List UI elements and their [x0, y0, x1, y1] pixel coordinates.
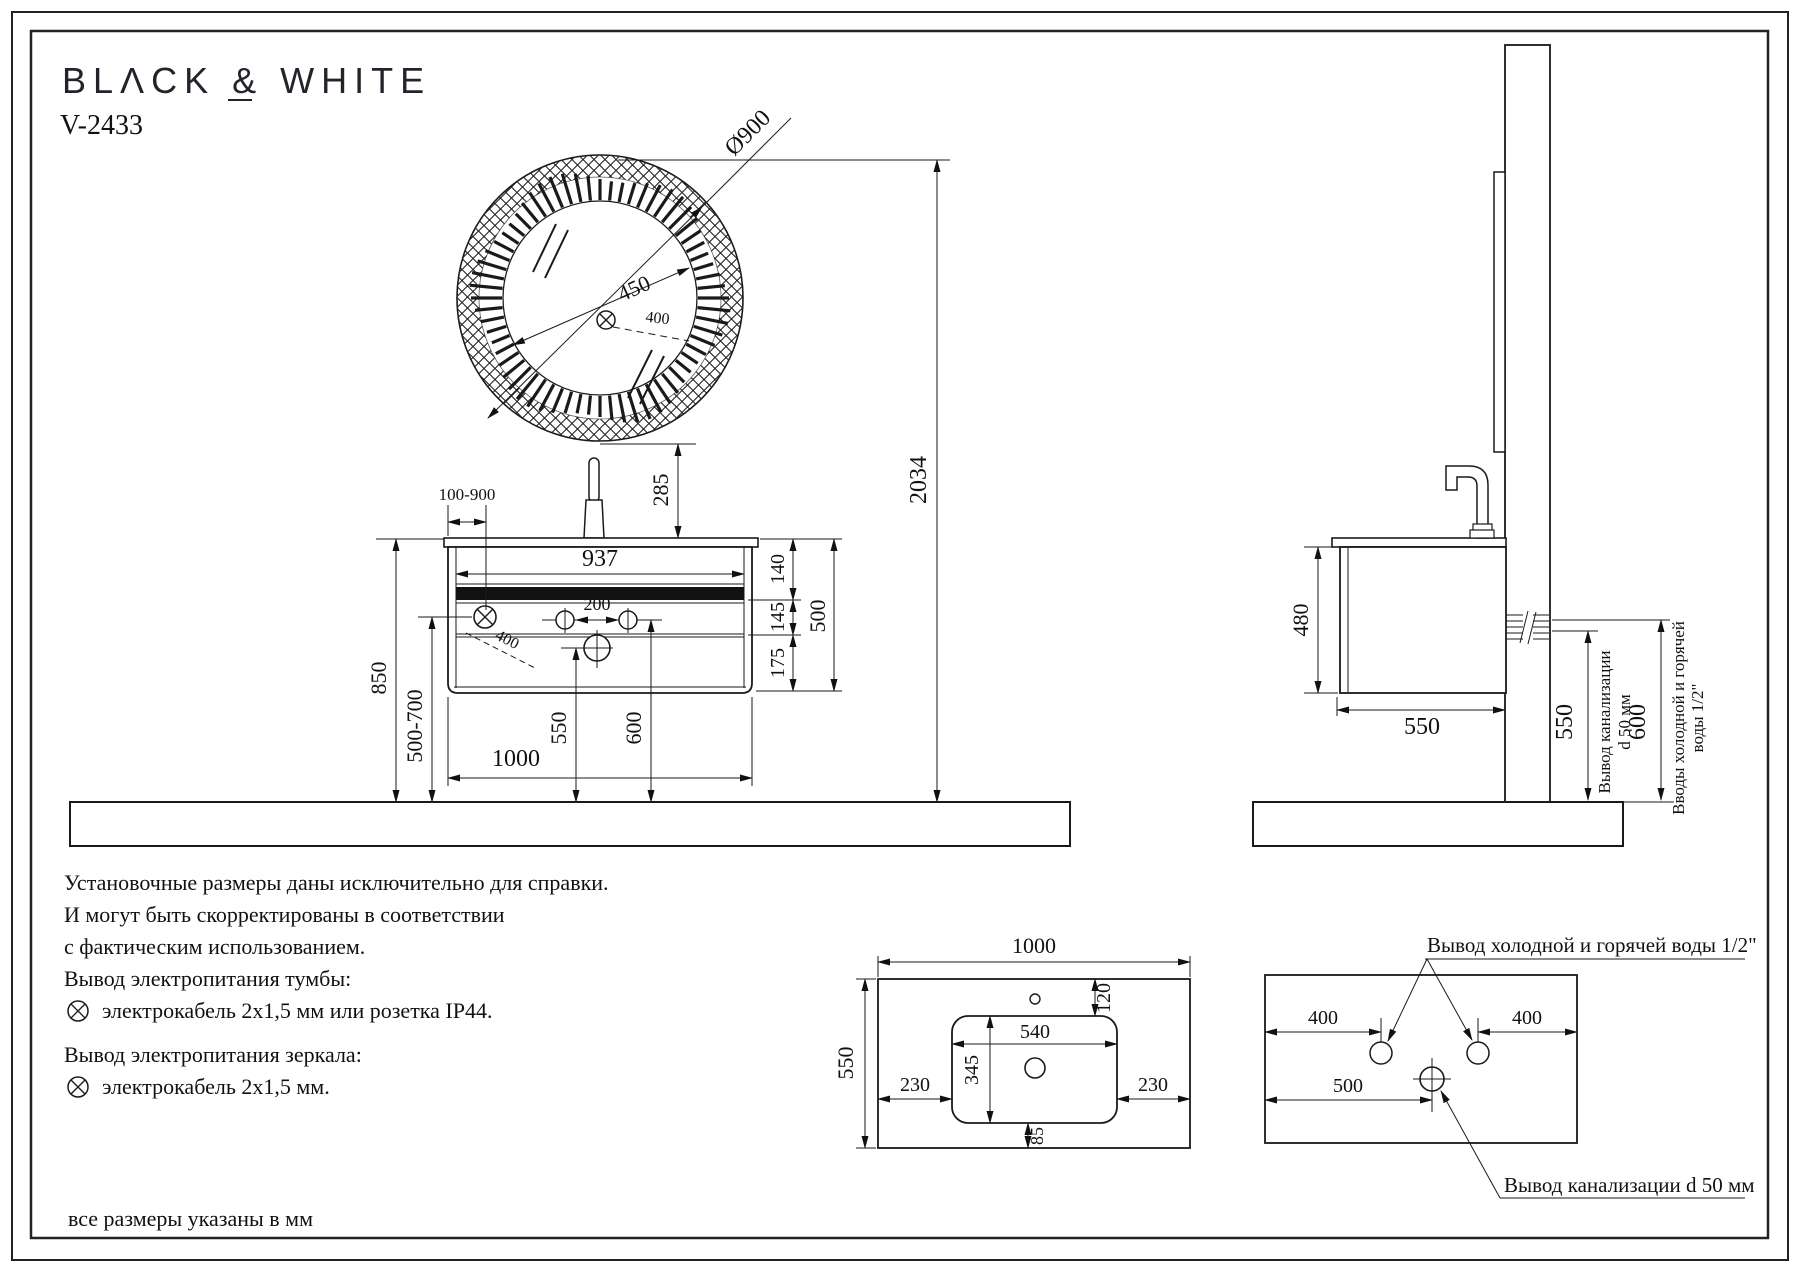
title-block: BLΛCK & WHITE V-2433	[60, 60, 431, 141]
dim-top-depth-label: 550	[833, 1047, 858, 1080]
note-line-7: электрокабель 2х1,5 мм.	[102, 1074, 330, 1099]
dim-drain-offset-label: 500	[1333, 1075, 1363, 1097]
note-line-2: И могут быть скорректированы в соответст…	[64, 902, 505, 927]
faucet-side	[1446, 466, 1494, 538]
side-water-note-line2: воды 1/2"	[1688, 684, 1707, 753]
wall-view: 400 400 500 Вывод холодной и горячей вод…	[1265, 933, 1757, 1198]
mirror-side	[1494, 172, 1505, 452]
dim-mirror-cable-label: 400	[645, 309, 671, 328]
dim-side-water-height-label: 600	[1625, 704, 1651, 740]
dim-mirror-diameter-label: Ø900	[720, 105, 776, 161]
dim-drain-height-front-label: 550	[546, 712, 571, 745]
dim-side-depth: 550	[1337, 697, 1505, 740]
power-symbol-mirror-note	[68, 1077, 88, 1097]
note-line-4: Вывод электропитания тумбы:	[64, 966, 351, 991]
side-water-note-line1: Вводы холодной и горячей	[1669, 621, 1688, 815]
dim-faucet-hole-offset: 120	[1093, 979, 1115, 1016]
note-line-6: Вывод электропитания зеркала:	[64, 1042, 362, 1067]
dim-faucet-range-label: 100-900	[439, 485, 496, 504]
floor-slab-side	[1253, 802, 1623, 846]
water-outlets-label: Вывод холодной и горячей воды 1/2"	[1427, 933, 1757, 957]
countertop-side	[1332, 538, 1506, 547]
note-line-3: с фактическим использованием.	[64, 934, 365, 959]
side-drain-note-line1: Вывод канализации	[1595, 650, 1614, 793]
dim-side-drain-height: 550 Вывод канализации d 50 мм	[1552, 631, 1634, 800]
dim-seg-mid-label: 145	[767, 602, 789, 632]
dim-basin-width-label: 540	[1020, 1021, 1050, 1043]
dim-mirror-gap-label: 285	[648, 474, 673, 507]
cabinet-side	[1332, 538, 1506, 693]
dim-inner-width-label: 937	[582, 546, 618, 572]
dim-right-margin-label: 230	[1138, 1074, 1168, 1096]
dim-counter-height-label: 850	[366, 662, 391, 695]
water-outlet-left	[1370, 1042, 1392, 1064]
dim-water-height-front-label: 600	[621, 712, 646, 745]
mirror-front: Ø900 450 400	[457, 105, 791, 441]
notes-block: Установочные размеры даны исключительно …	[64, 870, 609, 1231]
drain-hole	[1025, 1058, 1045, 1078]
faucet-hole	[1030, 994, 1040, 1004]
dim-left-margin-label: 230	[900, 1074, 930, 1096]
dim-seg-bottom-label: 175	[767, 648, 789, 678]
dim-mirror-gap: 285	[600, 444, 696, 538]
dim-side-drain-height-label: 550	[1552, 704, 1578, 740]
dim-faucet-hole-offset-label: 120	[1093, 983, 1115, 1013]
dim-cabinet-width: 1000	[448, 697, 752, 786]
dim-right-stack: 140 145 175 500	[748, 539, 842, 691]
dim-cabinet-height-label: 500	[805, 600, 830, 633]
dim-water-right-label: 400	[1512, 1007, 1542, 1029]
brand-logo: BLΛCK & WHITE	[62, 60, 431, 101]
dim-top-depth: 550	[833, 979, 876, 1148]
water-outlet-right	[1467, 1042, 1489, 1064]
dim-side-cabinet-height: 480	[1288, 547, 1338, 693]
model-number: V-2433	[60, 110, 143, 141]
dim-basin-depth-label: 345	[961, 1055, 983, 1085]
dim-seg-top-label: 140	[767, 554, 789, 584]
side-view: 480 550 550 Вывод канализации d 50 мм 60…	[1253, 45, 1707, 846]
faucet-front	[584, 458, 604, 538]
units-note: все размеры указаны в мм	[68, 1206, 313, 1231]
wall-panel-side	[1505, 45, 1550, 802]
dim-total-height-label: 2034	[906, 456, 932, 504]
dim-water-left-label: 400	[1308, 1007, 1338, 1029]
top-view: 1000 550 120 540 345 230 230	[833, 933, 1190, 1148]
technical-drawing-canvas: BLΛCK & WHITE V-2433 Ø90	[0, 0, 1800, 1272]
dim-side-depth-label: 550	[1404, 714, 1440, 740]
dim-holes-spacing-label: 200	[584, 594, 611, 614]
wall-outline	[1265, 975, 1577, 1143]
drain-outlet-label: Вывод канализации d 50 мм	[1504, 1173, 1755, 1197]
floor-slab-front	[70, 802, 1070, 846]
dim-basin-front-gap-label: 85	[1027, 1127, 1047, 1145]
dim-outlet-height-label: 500-700	[402, 689, 427, 762]
note-line-1: Установочные размеры даны исключительно …	[64, 870, 609, 895]
dim-cabinet-width-label: 1000	[492, 746, 540, 772]
note-line-5: электрокабель 2х1,5 мм или розетка IP44.	[102, 998, 493, 1023]
power-symbol-cabinet-note	[68, 1001, 88, 1021]
front-view: Ø900 450 400	[70, 105, 1070, 846]
dim-top-width: 1000	[878, 933, 1190, 977]
dim-top-width-label: 1000	[1012, 933, 1056, 958]
drawing-sheet: BLΛCK & WHITE V-2433 Ø90	[0, 0, 1800, 1272]
dim-side-cabinet-height-label: 480	[1288, 604, 1313, 637]
